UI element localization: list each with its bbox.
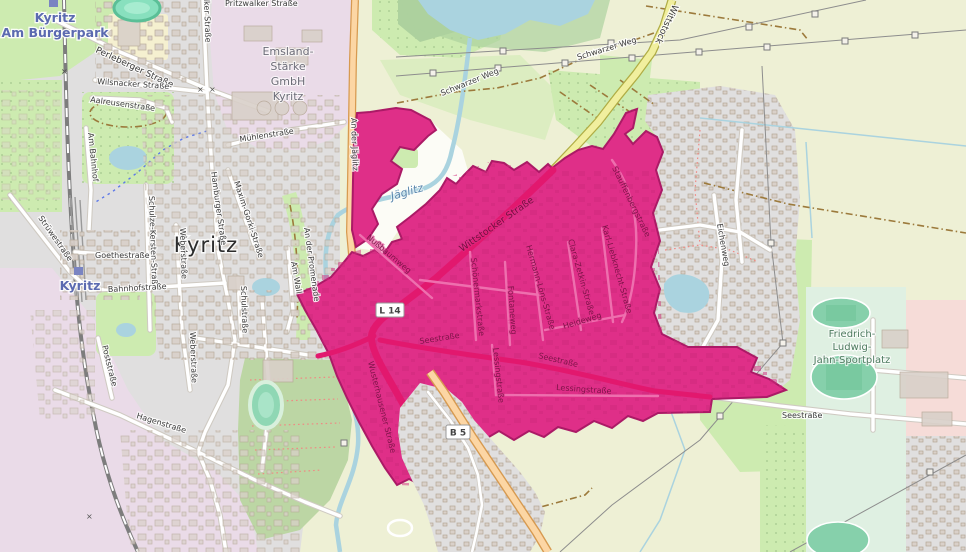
map-viewport[interactable]: × ×	[0, 0, 966, 552]
svg-text:×: ×	[197, 85, 204, 94]
svg-text:GmbH: GmbH	[271, 75, 306, 88]
svg-text:L 14: L 14	[379, 307, 400, 317]
svg-text:×: ×	[209, 85, 216, 94]
street-label-pritzwalker: Pritzwalker Straße	[225, 0, 298, 8]
street-label-weber-1: Weberstraße	[178, 228, 189, 279]
svg-text:Stärke: Stärke	[270, 60, 306, 73]
road-shield-l14: L 14	[376, 303, 404, 317]
station-label: Kyritz	[60, 278, 101, 293]
railway-halt-icon	[49, 0, 58, 7]
street-label-see-3: Seestraße	[782, 411, 822, 420]
svg-text:B 5: B 5	[450, 429, 466, 439]
map-canvas: × ×	[0, 0, 966, 552]
pond-park	[109, 146, 147, 170]
svg-text:Friedrich-: Friedrich-	[829, 329, 876, 340]
svg-text:×: ×	[86, 512, 93, 521]
street-label-goethe: Goethestraße	[95, 251, 150, 260]
street-label-weber-2: Weberstraße	[188, 332, 199, 383]
halt-label-line1: Kyritz	[35, 10, 76, 25]
svg-text:Emsland-: Emsland-	[262, 45, 313, 58]
svg-text:Jahn-Sportplatz: Jahn-Sportplatz	[813, 355, 891, 366]
street-label-schul: Schulstraße	[239, 286, 250, 334]
road-shield-b5: B 5	[446, 425, 470, 439]
railway-station-icon	[74, 267, 83, 275]
halt-label-line2: Am Bürgerpark	[1, 25, 109, 40]
pond-park-south	[116, 323, 136, 337]
svg-text:×: ×	[61, 67, 68, 76]
svg-text:Ludwig-: Ludwig-	[833, 342, 872, 353]
svg-text:Kyritz: Kyritz	[273, 90, 304, 103]
street-label-an-der-jaeglitz: An der Jäglitz	[349, 118, 360, 171]
